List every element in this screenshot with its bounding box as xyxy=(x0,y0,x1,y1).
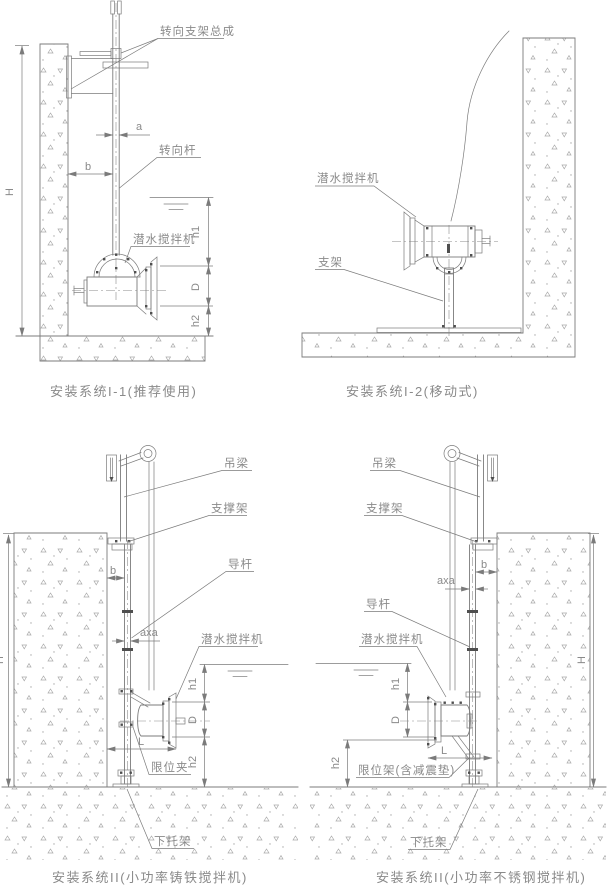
dimension-b: b xyxy=(107,565,125,578)
stand-label: 支架 xyxy=(318,256,343,269)
caption-system-i1: 安装系统I-1(推荐使用) xyxy=(50,384,197,399)
support-frame-label: 支撑架 xyxy=(366,501,404,515)
dimension-axa: axa xyxy=(112,627,160,641)
support-frame xyxy=(471,538,497,550)
water-level-icon xyxy=(150,198,213,210)
dim-H-label: H xyxy=(4,188,16,196)
submersible-mixer xyxy=(72,254,168,321)
guide-rod-label: 导杆 xyxy=(366,597,391,611)
panel-system-i1: H 转向支架总成 a xyxy=(4,1,235,399)
dimension-axa: axa xyxy=(437,575,488,589)
lower-bracket xyxy=(462,770,488,787)
dim-h2-label: h2 xyxy=(330,757,342,769)
concrete-ground xyxy=(310,788,606,860)
dimension-h2: h2 xyxy=(330,740,437,787)
dim-a-label: a xyxy=(136,121,143,133)
dimension-D: D xyxy=(390,702,434,737)
concrete-wall xyxy=(40,44,205,361)
submersible-mixer-label: 潜水搅拌机 xyxy=(317,171,380,185)
dim-b-label: b xyxy=(481,559,487,571)
dim-L-label: L xyxy=(138,736,144,748)
concrete-wall xyxy=(14,533,107,787)
power-cable xyxy=(451,31,509,221)
dimension-h1: h1 xyxy=(190,198,209,267)
label-limit-frame: 限位架(含减震垫) xyxy=(356,757,470,778)
dim-D-label: D xyxy=(190,283,202,291)
caption-system-i2: 安装系统I-2(移动式) xyxy=(346,384,479,399)
water-level-icon xyxy=(200,665,288,677)
label-support-frame: 支撑架 xyxy=(364,501,477,542)
limit-clamp-label: 限位夹 xyxy=(151,760,189,774)
limit-frame-label: 限位架(含减震垫) xyxy=(358,763,455,777)
dimension-H: H xyxy=(0,534,14,788)
label-hanging-beam: 吊梁 xyxy=(370,456,480,497)
lower-bracket-label: 下托架 xyxy=(410,835,448,849)
dim-axa-label: axa xyxy=(140,627,159,639)
concrete-wall xyxy=(302,38,575,357)
caption-system-ii-cast-iron: 安装系统II(小功率铸铁搅拌机) xyxy=(52,870,248,885)
guide-rod-label: 导杆 xyxy=(228,557,253,571)
lower-bracket-label: 下托架 xyxy=(154,834,192,848)
dim-L-label: L xyxy=(441,745,447,757)
label-support-frame: 支撑架 xyxy=(127,501,249,542)
dimension-D: D xyxy=(172,702,210,737)
steering-bracket-assembly xyxy=(67,49,149,99)
dim-b-label: b xyxy=(85,161,91,173)
concrete-ground xyxy=(2,788,298,860)
caption-system-ii-stainless: 安装系统II(小功率不锈钢搅拌机) xyxy=(376,870,586,885)
dim-h1-label: h1 xyxy=(390,678,402,690)
label-stand: 支架 xyxy=(315,256,443,301)
dim-H-label: H xyxy=(576,656,588,664)
guide-rod xyxy=(122,540,133,790)
dim-D-label: D xyxy=(187,716,199,724)
label-steering-rod: 转向杆 xyxy=(120,143,202,188)
dimension-H: H xyxy=(4,46,29,337)
guide-rod xyxy=(467,540,478,790)
dim-h2-label: h2 xyxy=(187,756,199,768)
dim-b-label: b xyxy=(110,565,116,577)
submersible-mixer-label: 潜水搅拌机 xyxy=(361,632,424,646)
dimension-h1: h1 xyxy=(187,665,205,703)
dimension-b: b xyxy=(476,559,498,572)
dimension-D: D xyxy=(160,266,213,306)
label-hanging-beam: 吊梁 xyxy=(124,456,252,497)
label-submersible-mixer: 潜水搅拌机 xyxy=(315,171,416,217)
water-level-icon xyxy=(316,664,411,676)
installation-drawing: H 转向支架总成 a xyxy=(0,0,608,895)
hanging-beam-label: 吊梁 xyxy=(224,456,249,470)
lower-bracket xyxy=(113,770,139,787)
dimension-h2: h2 xyxy=(187,737,205,787)
panel-system-i2: 潜水搅拌机 支架 安装系统I-2(移动式) xyxy=(302,31,575,399)
label-submersible-mixer: 潜水搅拌机 xyxy=(359,632,446,697)
dim-H-label: H xyxy=(0,656,6,664)
label-guide-rod: 导杆 xyxy=(132,557,255,638)
label-steering-bracket-assembly: 转向支架总成 xyxy=(71,24,235,89)
submersible-mixer xyxy=(392,212,498,338)
steering-rod-label: 转向杆 xyxy=(159,143,197,157)
dim-D-label: D xyxy=(390,716,402,724)
submersible-mixer-label: 潜水搅拌机 xyxy=(201,632,264,646)
panel-system-ii-stainless: H 吊梁 支撑架 xyxy=(310,446,606,886)
dimension-h2: h2 xyxy=(190,306,209,336)
panel-system-ii-cast-iron: H 吊梁 支撑架 xyxy=(0,446,298,886)
dimension-L: L xyxy=(107,736,176,749)
dimension-h1: h1 xyxy=(390,664,408,703)
dim-h1-label: h1 xyxy=(187,678,199,690)
dim-axa-label: axa xyxy=(437,575,456,587)
label-limit-clamp: 限位夹 xyxy=(133,727,191,775)
label-submersible-mixer: 潜水搅拌机 xyxy=(125,232,196,263)
hanging-beam-label: 吊梁 xyxy=(372,456,397,470)
hanging-beam xyxy=(444,446,498,691)
support-frame-label: 支撑架 xyxy=(211,501,249,515)
dim-h2-label: h2 xyxy=(190,315,202,327)
submersible-mixer-label: 潜水搅拌机 xyxy=(133,232,196,246)
steering-bracket-assembly-label: 转向支架总成 xyxy=(160,24,235,38)
dimension-b: b xyxy=(68,161,113,174)
drawing-canvas: H 转向支架总成 a xyxy=(0,0,608,895)
dimension-a: a xyxy=(96,121,150,135)
